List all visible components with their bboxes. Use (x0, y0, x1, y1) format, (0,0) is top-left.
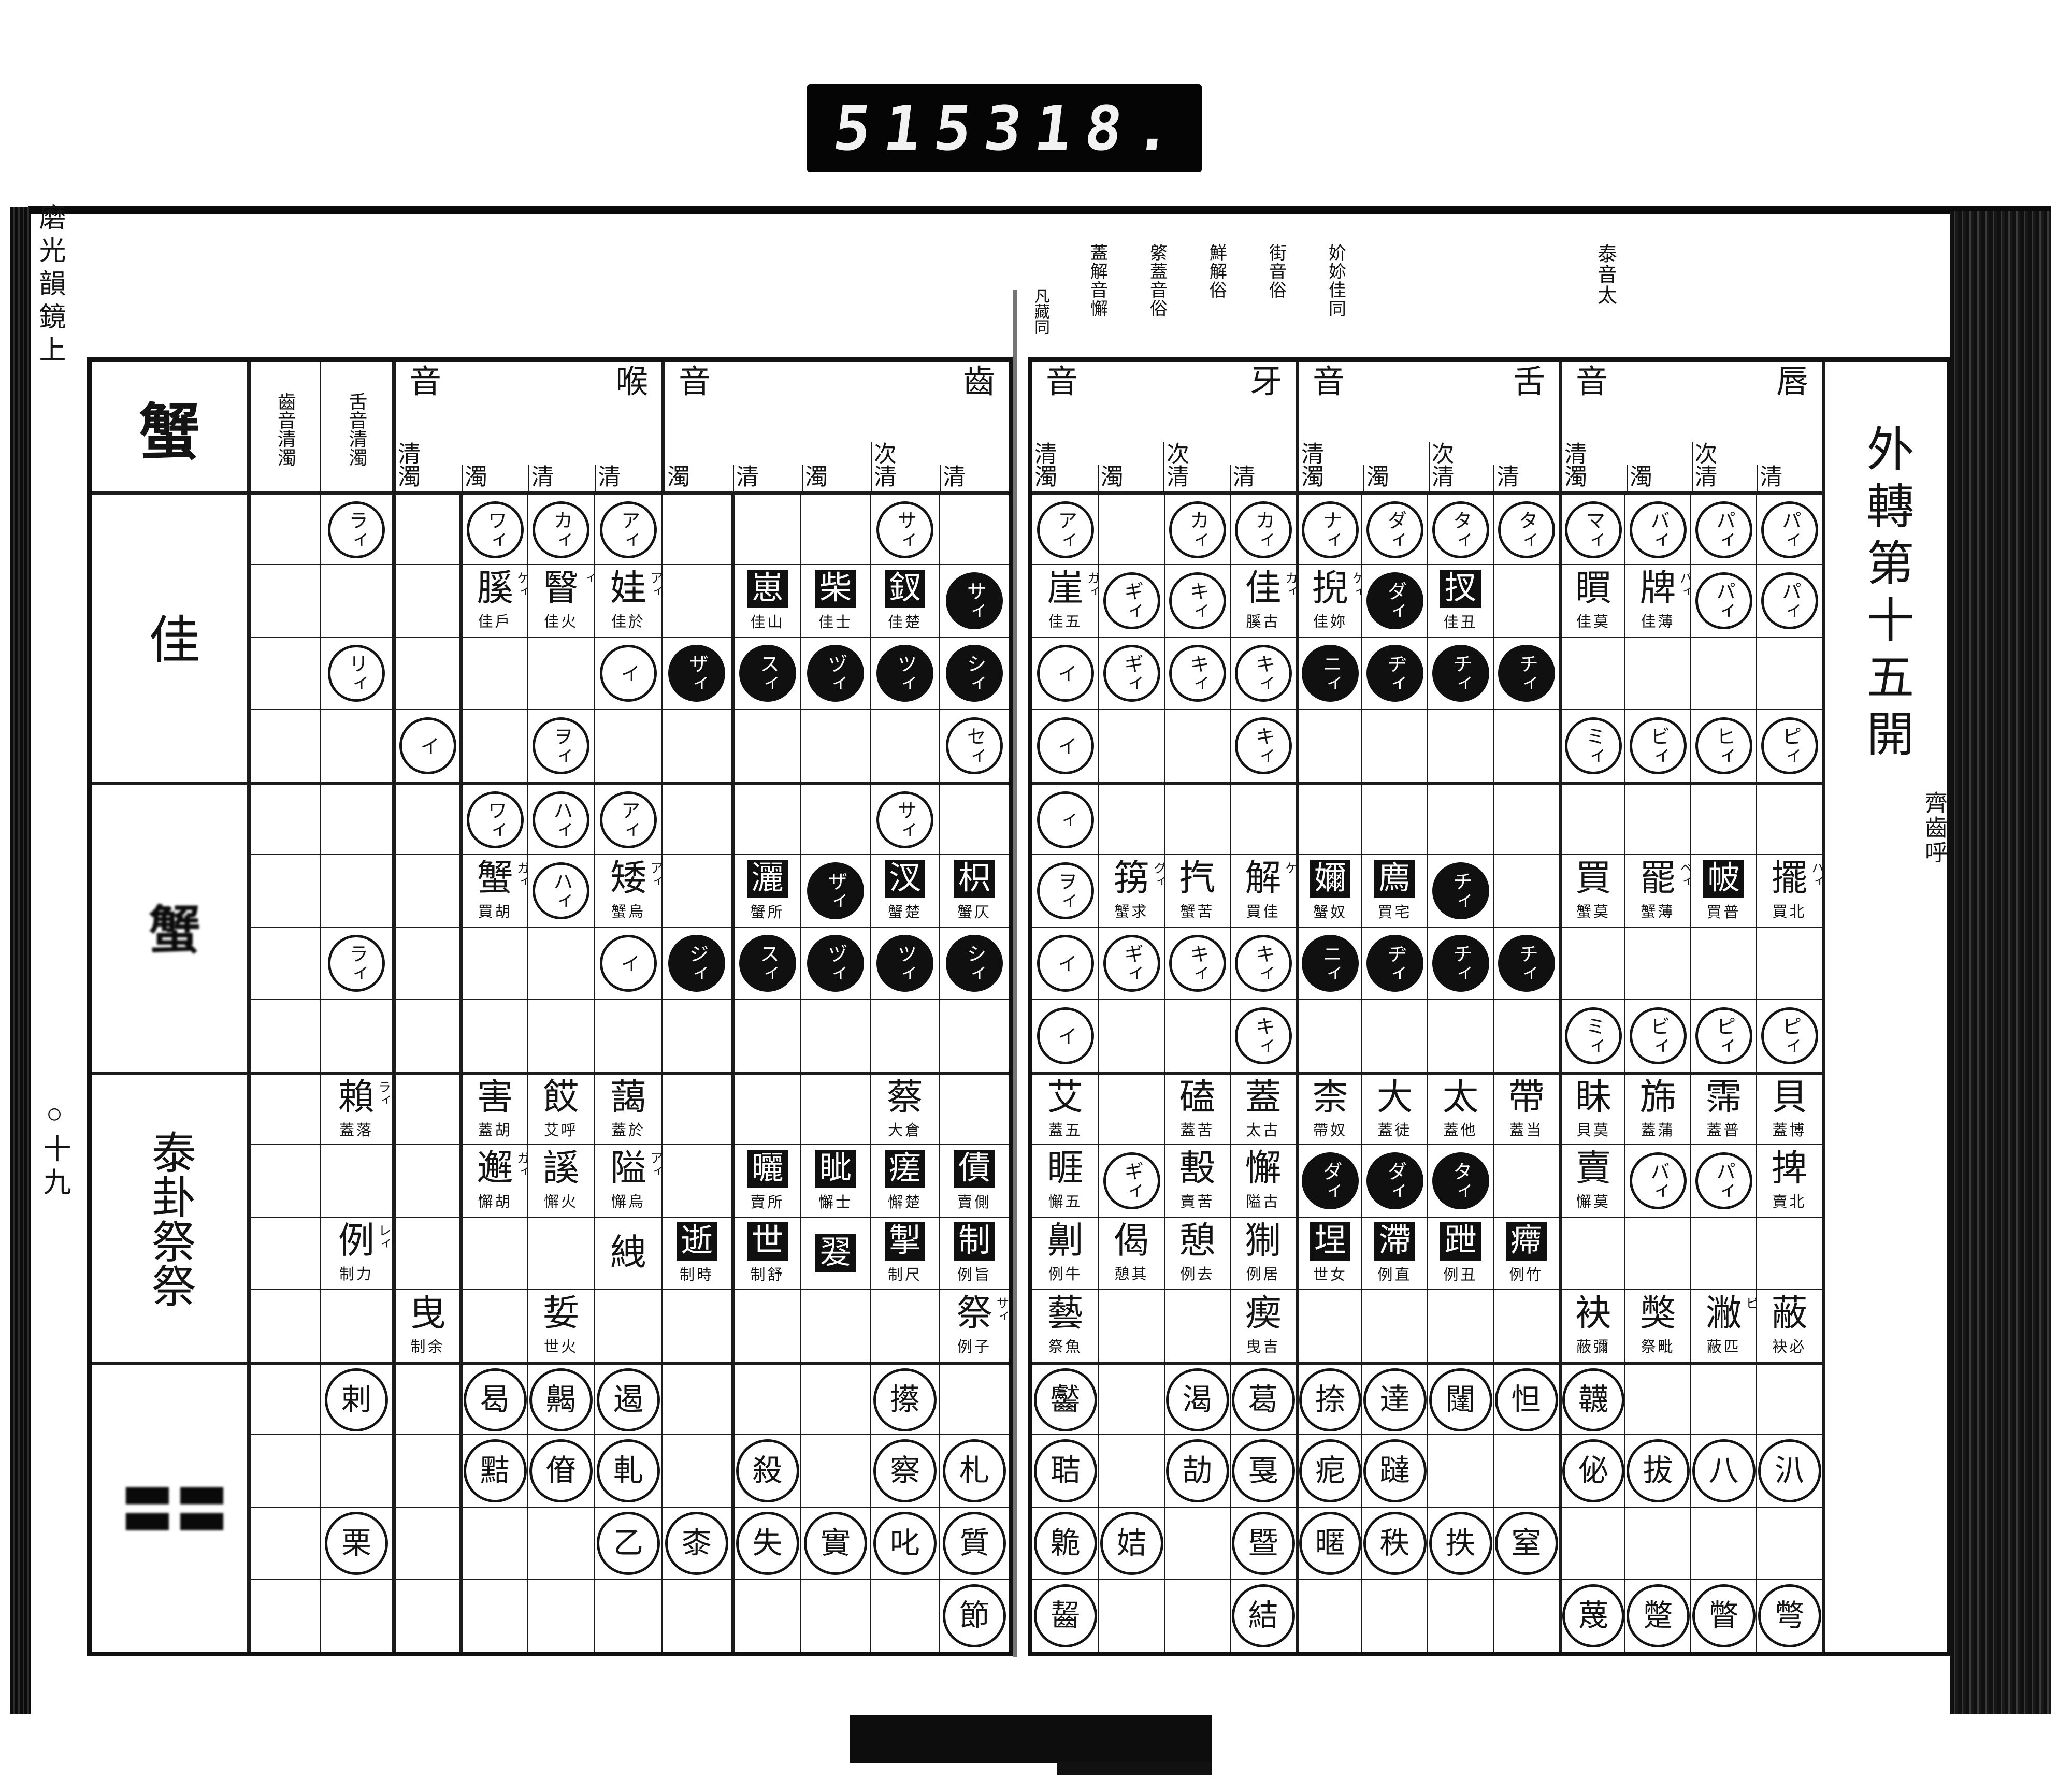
fanqie-note: 佳丑 (1443, 610, 1477, 632)
column-group-header: 喉音清濁濁清清 (396, 362, 661, 491)
character-main: 曳 (410, 1295, 446, 1332)
group-header-cell: 唇音清濁濁次清清 (1559, 362, 1822, 491)
fanqie-note: 蟹烏 (611, 900, 645, 921)
fanqie-note: 大倉 (888, 1118, 922, 1140)
character-main: 㧉 (1179, 860, 1216, 897)
table-cell: ミィ (1559, 999, 1624, 1072)
fanqie-note: 佳五 (1048, 610, 1082, 631)
character-main: 袂 (1575, 1295, 1611, 1332)
reading-circle: アィ (600, 791, 657, 848)
circled-character: 齾 (1034, 1368, 1097, 1431)
katakana-gloss: サィ (995, 1296, 1008, 1322)
character-main: 害 (477, 1079, 513, 1116)
katakana-gloss: ハィ (1810, 861, 1822, 887)
table-cell (870, 999, 939, 1072)
katakana-gloss: ベィ (1679, 861, 1691, 887)
column-label: 清 (1757, 465, 1822, 491)
entry-character: 跇例丑 (1440, 1222, 1480, 1284)
table-cell: イ (1032, 637, 1098, 709)
entry-character: 藝祭魚 (1047, 1295, 1084, 1356)
reading-circle: キィ (1169, 935, 1226, 992)
fanqie-note: 蓋他 (1443, 1118, 1477, 1140)
reading-circle: ワィ (467, 501, 524, 558)
table-cell (1164, 999, 1230, 1072)
table-cell (1361, 709, 1427, 782)
character-inverted: 制 (954, 1222, 995, 1260)
table-cell: 達 (1361, 1362, 1427, 1434)
column-group-header: 齒音濁清濁次清清 (665, 362, 1009, 491)
entry-character: 蔽袂必 (1772, 1295, 1808, 1356)
entry-character: 祭サィ例子 (956, 1295, 992, 1356)
entry-character: 佳カィ膎古 (1245, 570, 1282, 631)
character-main: 瞖 (543, 570, 579, 607)
table-cell (320, 1289, 392, 1362)
reading-circle: ミィ (1565, 1007, 1622, 1064)
column-label: 清 (595, 465, 661, 491)
table-cell: マィ (1559, 491, 1624, 564)
entry-character: 太蓋他 (1443, 1079, 1479, 1140)
column-label: 清濁 (1032, 442, 1098, 491)
fanqie-note: 例子 (957, 1335, 991, 1356)
table-cell: ピィ (1756, 709, 1822, 782)
character-inverted: 曬 (747, 1150, 787, 1188)
table-cell: ラィ (320, 491, 392, 564)
table-cell: キィ (1230, 637, 1296, 709)
table-cell: ツィ (870, 927, 939, 999)
entry-character: 帔買普 (1703, 860, 1744, 921)
fanqie-note: 蓋落 (339, 1118, 373, 1140)
table-cell (247, 1362, 320, 1434)
table-cell: ワィ (459, 782, 527, 854)
table-cell: 栗 (320, 1507, 392, 1579)
table-cell (939, 1072, 1009, 1144)
katakana-gloss: ケィ (516, 571, 527, 597)
table-cell: スィ (731, 927, 800, 999)
table-cell: 蔑 (1559, 1579, 1624, 1652)
reading-circle-inverted: スィ (739, 645, 796, 702)
reading-circle: イ (1037, 645, 1094, 702)
table-cell: 毄賣苦 (1164, 1144, 1230, 1217)
table-cell: 牌バィ佳薄 (1624, 564, 1690, 637)
entry-character: 絏 (610, 1235, 646, 1271)
table-cell: 艾蓋五 (1032, 1072, 1098, 1144)
table-cell (1098, 1579, 1164, 1652)
katakana-gloss: ガィ (516, 1151, 527, 1177)
table-cell: 齃 (527, 1362, 594, 1434)
table-cell (1427, 1289, 1493, 1362)
fanqie-note: 懈火 (544, 1190, 578, 1211)
character-main: 猘 (1245, 1223, 1282, 1260)
reading-circle: キィ (1235, 645, 1292, 702)
entry-character: 世制舒 (747, 1222, 787, 1284)
table-cell: タィ (1493, 491, 1559, 564)
reading-circle: パィ (1695, 501, 1752, 558)
chart-title: 外轉第十五開 (1852, 424, 1921, 766)
table-cell: ニィ (1296, 637, 1361, 709)
circled-character: 傄 (529, 1439, 593, 1502)
table-cell: 蓋太古 (1230, 1072, 1296, 1144)
entry-character: 買蟹莫 (1575, 860, 1611, 921)
table-cell: 藝祭魚 (1032, 1289, 1098, 1362)
entry-character: 艾蓋五 (1047, 1079, 1084, 1140)
table-cell (594, 1289, 661, 1362)
table-cell (392, 999, 459, 1072)
fanqie-note: 祭毗 (1641, 1335, 1675, 1356)
table-cell: ギィ (1098, 927, 1164, 999)
table-cell (1493, 999, 1559, 1072)
table-cell: 祭サィ例子 (939, 1289, 1009, 1362)
fanqie-note: 世火 (544, 1335, 578, 1356)
table-cell: 暱 (1296, 1507, 1361, 1579)
fanqie-note: 袂必 (1772, 1335, 1806, 1356)
table-cell (320, 854, 392, 927)
character-main: 買 (1575, 860, 1611, 897)
group-column-labels: 清濁濁次清清 (1032, 420, 1296, 491)
table-cell: カィ (1230, 491, 1296, 564)
table-cell: 齧 (1032, 1579, 1098, 1652)
character-main: 掜 (1312, 570, 1348, 607)
character-inverted: 嬭 (1310, 860, 1350, 898)
table-cell (527, 999, 594, 1072)
table-cell (320, 1579, 392, 1652)
table-cell: チィ (1493, 637, 1559, 709)
fanqie-note: 蟹所 (750, 900, 784, 922)
table-cell (392, 927, 459, 999)
table-cell (459, 637, 527, 709)
entry-character: 獘祭毗 (1640, 1295, 1676, 1356)
table-cell: 秩 (1361, 1507, 1427, 1579)
reading-circle-inverted: スィ (739, 935, 796, 992)
character-main: 邂 (477, 1150, 513, 1187)
entry-character: 娎世火 (543, 1295, 579, 1356)
circled-character: 彆 (1758, 1584, 1821, 1647)
column-label: 濁 (1363, 465, 1429, 491)
fanqie-note: 蓋普 (1706, 1118, 1740, 1140)
fanqie-note: 蟹苦 (1180, 900, 1214, 921)
table-cell: 箉グィ蟹求 (1098, 854, 1164, 927)
entry-character: 廌買宅 (1374, 860, 1415, 921)
character-main: 崖 (1047, 570, 1084, 607)
table-cell (731, 782, 800, 854)
table-cell (247, 1289, 320, 1362)
character-main: 餀 (543, 1079, 579, 1116)
circled-character: 剌 (325, 1368, 388, 1431)
fanqie-note: 例丑 (1443, 1263, 1477, 1284)
character-main: 偈 (1114, 1223, 1150, 1260)
book-bottom-edge (850, 1715, 1212, 1763)
table-cell (594, 999, 661, 1072)
table-cell (247, 927, 320, 999)
reading-circle: サィ (876, 501, 933, 558)
table-cell (731, 1289, 800, 1362)
table-cell: 質 (939, 1507, 1009, 1579)
reading-circle-inverted: シィ (946, 935, 1003, 992)
entry-character: 曬賣所 (747, 1150, 787, 1211)
counter-left-value: 515 (830, 93, 989, 164)
frame-counter-display: 515 318. (807, 84, 1202, 172)
entry-character: 霈蓋普 (1706, 1079, 1742, 1140)
fanqie-note: 蟹求 (1114, 900, 1148, 921)
table-cell: 暨 (1230, 1507, 1296, 1579)
table-cell: 佳カィ膎古 (1230, 564, 1296, 637)
character-main: 例 (338, 1223, 375, 1260)
narrow-column-header: 舌音清濁 (320, 362, 392, 491)
table-cell: バィ (1624, 491, 1690, 564)
row-group-label: 佳 (142, 613, 197, 664)
table-cell (661, 1362, 731, 1434)
fanqie-note: 蓋胡 (478, 1118, 512, 1140)
reading-circle-inverted: ツィ (876, 645, 933, 702)
table-cell: 翇 (800, 1217, 870, 1289)
table-cell: 㘿世女 (1296, 1217, 1361, 1289)
table-cell (1361, 1289, 1427, 1362)
narrow-header-text: 舌音清濁 (347, 387, 366, 467)
book-bottom-blob (1057, 1762, 1212, 1775)
table-cell: 崖ガィ佳五 (1032, 564, 1098, 637)
fanqie-note: 制力 (339, 1262, 373, 1284)
character-main: 旆 (1640, 1079, 1676, 1116)
fanqie-note: 蓋苦 (1180, 1118, 1214, 1140)
entry-character: 瞖ィ佳火 (543, 570, 579, 631)
entry-character: 娃アィ佳於 (610, 570, 646, 631)
table-cell (392, 1217, 459, 1289)
fanqie-note: 蓋蒲 (1641, 1118, 1675, 1140)
character-main: 䁲 (1575, 570, 1611, 607)
table-cell: アィ (594, 491, 661, 564)
table-cell: イ (392, 709, 459, 782)
group-name: 齒音 (665, 362, 1009, 420)
entry-character: 掣制尺 (885, 1222, 925, 1284)
table-cell (1559, 782, 1624, 854)
fanqie-note: 賣苦 (1180, 1190, 1214, 1211)
group-header-cell: 喉音清濁濁清清 (392, 362, 661, 491)
group-name-char: 音 (679, 366, 711, 398)
row-group-label: 蟹 (142, 903, 197, 954)
reading-circle-inverted: チィ (1432, 935, 1489, 992)
table-cell (1296, 1289, 1361, 1362)
entry-character: 㧉蟹苦 (1179, 860, 1216, 921)
table-cell: 黠 (459, 1434, 527, 1507)
character-main: 毄 (1179, 1150, 1216, 1187)
reading-circle: イ (1037, 1007, 1094, 1064)
reading-circle-inverted: ヂィ (1366, 645, 1423, 702)
table-cell: 債賣側 (939, 1144, 1009, 1217)
reading-note: 街音俗 (1267, 243, 1285, 299)
table-cell: 劓例牛 (1032, 1217, 1098, 1289)
row-group-label: 泰卦祭祭 (146, 1130, 193, 1308)
fanqie-note: 佳妳 (1313, 610, 1347, 631)
character-main: 太 (1443, 1079, 1479, 1116)
table-cell: 逝制時 (661, 1217, 731, 1289)
table-cell: ニィ (1296, 927, 1361, 999)
reading-circle: パィ (1761, 501, 1818, 558)
table-cell (661, 709, 731, 782)
entry-character: 㿃例竹 (1506, 1222, 1546, 1284)
reading-circle: マィ (1565, 501, 1622, 558)
reading-circle: ミィ (1565, 717, 1622, 774)
fanqie-note: 世女 (1313, 1263, 1347, 1284)
table-cell (247, 1434, 320, 1507)
table-cell (1098, 1434, 1164, 1507)
fanqie-note: 買佳 (1246, 900, 1280, 921)
table-cell: 㧉蟹苦 (1164, 854, 1230, 927)
entry-character: 罷ベィ蟹薄 (1640, 860, 1676, 921)
character-main: 瘈 (1245, 1295, 1282, 1332)
table-cell: 帶蓋当 (1493, 1072, 1559, 1144)
circled-character: 失 (736, 1512, 799, 1575)
circled-character: 黠 (464, 1439, 527, 1502)
table-cell (1493, 1579, 1559, 1652)
entry-character: 蔡大倉 (887, 1079, 923, 1140)
table-cell: 彆 (1756, 1579, 1822, 1652)
table-cell (800, 999, 870, 1072)
table-cell (731, 1072, 800, 1144)
table-cell: 劼 (1164, 1434, 1230, 1507)
table-cell (247, 709, 320, 782)
table-cell: アィ (1032, 491, 1098, 564)
reading-circle: サィ (876, 791, 933, 848)
circled-character: 遏 (597, 1368, 660, 1431)
table-cell: 躂 (1361, 1434, 1427, 1507)
table-cell: チィ (1427, 854, 1493, 927)
table-cell (1361, 1579, 1427, 1652)
table-cell: タィ (1427, 1144, 1493, 1217)
column-label: 次清 (1429, 442, 1494, 491)
group-column-labels: 清濁濁次清清 (1299, 420, 1559, 491)
reading-circle-inverted: ヂィ (1366, 935, 1423, 992)
table-cell (392, 854, 459, 927)
table-cell: 扠佳丑 (1427, 564, 1493, 637)
table-cell (1690, 927, 1756, 999)
table-cell (247, 564, 320, 637)
entry-character: 磕蓋苦 (1179, 1079, 1216, 1140)
character-main: 蟹 (477, 860, 513, 897)
character-inverted: 逝 (677, 1222, 717, 1260)
table-cell (247, 637, 320, 709)
table-cell: 姞 (1098, 1507, 1164, 1579)
table-cell: ハィ (527, 782, 594, 854)
table-cell (1493, 1434, 1559, 1507)
table-cell (459, 1579, 527, 1652)
reading-circle-inverted: チィ (1432, 862, 1489, 919)
reading-circle-inverted: タィ (1432, 1152, 1489, 1209)
table-cell: 捺 (1296, 1362, 1361, 1434)
table-cell: 買蟹莫 (1559, 854, 1624, 927)
character-main: 捭 (1772, 1150, 1808, 1187)
entry-character: 逝制時 (677, 1222, 717, 1284)
narrow-header-text: 齒音清濁 (276, 387, 295, 467)
reading-circle: ワィ (467, 791, 524, 848)
table-cell: ピィ (1756, 999, 1822, 1072)
katakana-gloss: アィ (649, 1151, 661, 1177)
table-cell: 蹩 (1624, 1579, 1690, 1652)
character-main: 潎 (1706, 1295, 1742, 1332)
character-main: 擺 (1772, 860, 1808, 897)
fanqie-note: 例牛 (1048, 1262, 1082, 1284)
table-cell (1690, 782, 1756, 854)
character-main: 蔡 (887, 1079, 923, 1116)
entry-character: 瘈曳吉 (1245, 1295, 1282, 1356)
table-cell (870, 709, 939, 782)
katakana-gloss: グィ (1153, 861, 1164, 887)
table-cell (1164, 1579, 1230, 1652)
fanqie-note: 例去 (1180, 1262, 1214, 1284)
table-cell (392, 1507, 459, 1579)
group-name-char: 音 (409, 366, 441, 398)
character-main: 懈 (1245, 1150, 1282, 1187)
table-cell (661, 1579, 731, 1652)
table-cell: 釵佳楚 (870, 564, 939, 637)
entry-character: 帶蓋当 (1508, 1079, 1545, 1140)
circled-character: 姞 (1100, 1512, 1163, 1575)
table-cell: 掣制尺 (870, 1217, 939, 1289)
circled-character: 捺 (1299, 1368, 1361, 1431)
table-cell: イ (594, 927, 661, 999)
table-cell: 解ケ買佳 (1230, 854, 1296, 927)
table-cell (247, 1072, 320, 1144)
table-cell: 臲 (1032, 1507, 1098, 1579)
table-cell: イ (1032, 709, 1098, 782)
table-cell: 旆蓋蒲 (1624, 1072, 1690, 1144)
fanqie-note: 懈士 (818, 1190, 853, 1212)
row-group-label-cell: 佳 (92, 491, 247, 782)
table-cell: カィ (527, 491, 594, 564)
circled-character: 結 (1232, 1584, 1295, 1647)
table-cell: ギィ (1098, 1144, 1164, 1217)
table-cell (731, 999, 800, 1072)
table-cell: 剌 (320, 1362, 392, 1434)
table-cell: 睚懈五 (1032, 1144, 1098, 1217)
table-cell (870, 1579, 939, 1652)
table-cell (661, 999, 731, 1072)
entry-character: 袂蔽彌 (1575, 1295, 1611, 1356)
column-group-header: 舌音清濁濁次清清 (1299, 362, 1559, 491)
table-cell: ダィ (1361, 491, 1427, 564)
table-cell (1690, 1362, 1756, 1434)
fanqie-note: 蓋徒 (1377, 1118, 1412, 1140)
table-cell (1756, 637, 1822, 709)
entry-character: 害蓋胡 (477, 1079, 513, 1140)
character-main: 柰 (1312, 1079, 1348, 1116)
reading-circle: ラィ (328, 935, 385, 992)
fanqie-note: 買普 (1706, 900, 1740, 922)
entry-character: 扠佳丑 (1440, 570, 1480, 631)
table-cell (1427, 999, 1493, 1072)
table-cell: パィ (1690, 491, 1756, 564)
circled-character: 怛 (1495, 1368, 1558, 1431)
table-cell: サィ (870, 491, 939, 564)
circled-character: 汃 (1758, 1439, 1821, 1502)
table-cell (1361, 999, 1427, 1072)
circled-character: 渴 (1166, 1368, 1229, 1431)
entry-character: 懈隘古 (1245, 1150, 1282, 1211)
circled-character: 曷 (464, 1368, 527, 1431)
entry-character: 賴ラィ蓋落 (338, 1079, 375, 1140)
character-main: 娃 (610, 570, 646, 607)
table-cell: サィ (870, 782, 939, 854)
table-cell: ギィ (1098, 637, 1164, 709)
table-cell (1098, 1072, 1164, 1144)
circled-character: 栗 (325, 1512, 388, 1575)
table-cell: 潎ピ蔽匹 (1690, 1289, 1756, 1362)
entry-character: 滯例直 (1374, 1222, 1415, 1284)
character-main: 蔽 (1772, 1295, 1808, 1332)
fanqie-note: 佳山 (750, 610, 784, 632)
reading-circle: キィ (1169, 645, 1226, 702)
group-name: 牙音 (1032, 362, 1296, 420)
reading-circle: パィ (1695, 1152, 1752, 1209)
character-main: 解 (1245, 860, 1282, 897)
